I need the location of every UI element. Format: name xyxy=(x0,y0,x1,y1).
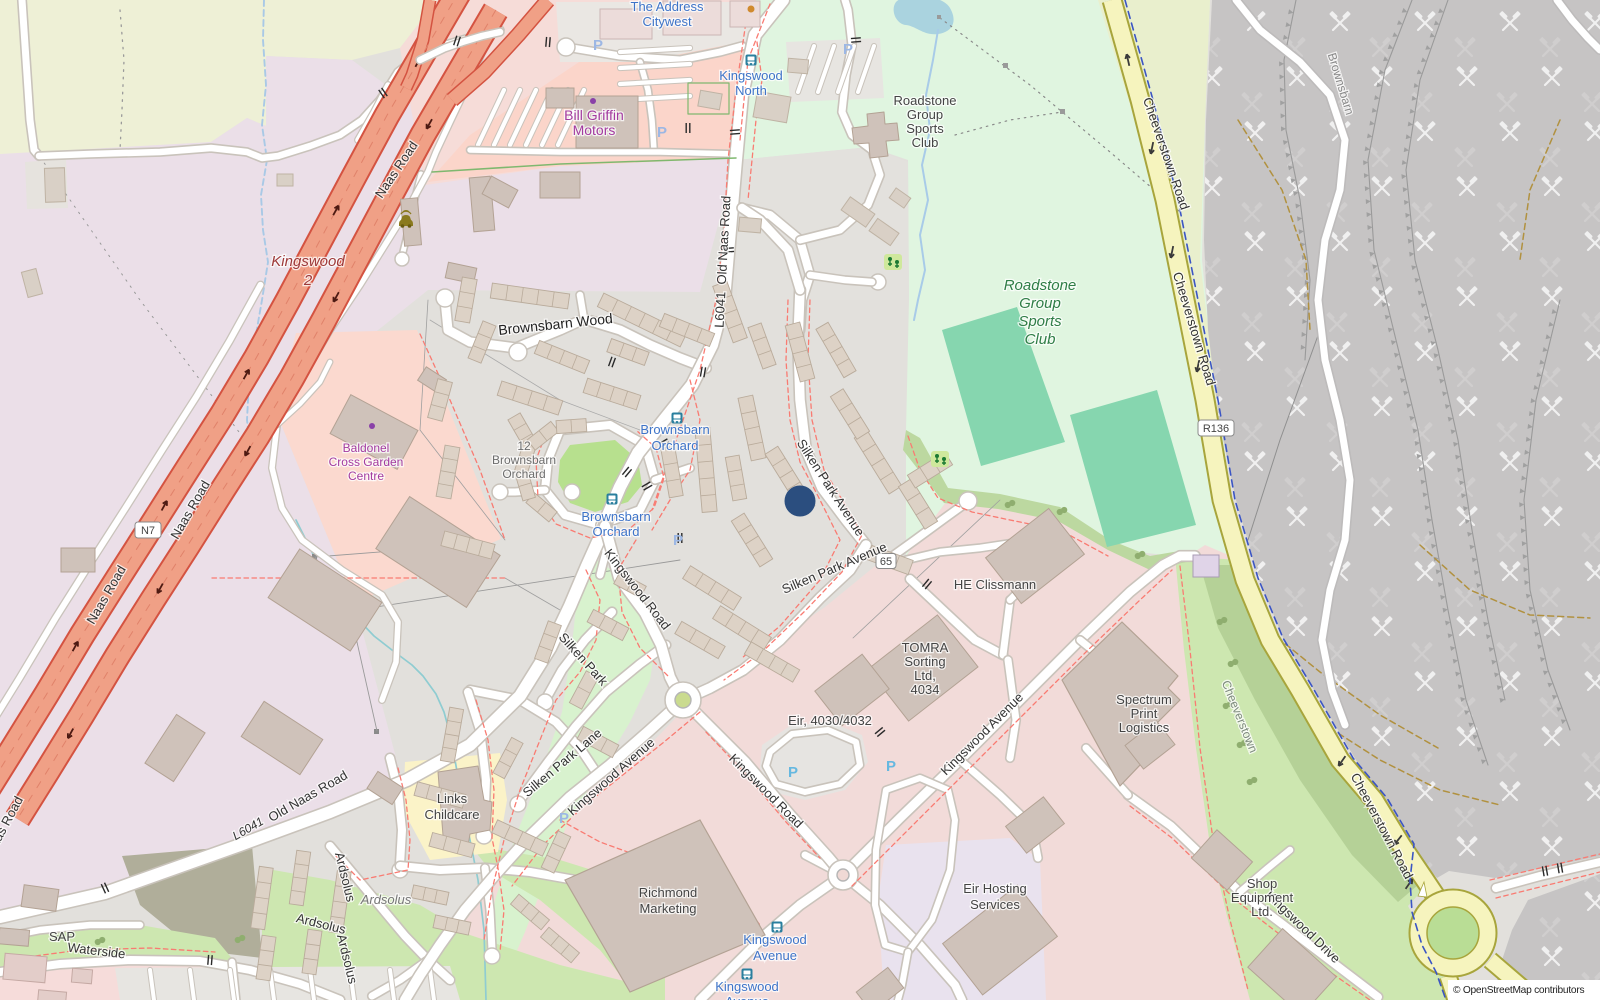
svg-text:Group: Group xyxy=(907,107,943,122)
svg-text:Baldonel: Baldonel xyxy=(343,441,390,455)
svg-text:Ltd,: Ltd, xyxy=(914,668,936,683)
svg-text:Kingswood: Kingswood xyxy=(719,68,783,83)
svg-text:Ltd.: Ltd. xyxy=(1251,904,1273,919)
svg-text:2: 2 xyxy=(303,272,313,289)
svg-text:HE Clissmann: HE Clissmann xyxy=(954,577,1036,592)
svg-text:Richmond: Richmond xyxy=(639,885,698,900)
svg-text:Eir, 4030/4032: Eir, 4030/4032 xyxy=(788,713,872,728)
svg-text:Sports: Sports xyxy=(1018,313,1062,330)
svg-text:Equipment: Equipment xyxy=(1231,890,1294,905)
svg-text:Orchard: Orchard xyxy=(593,524,640,539)
svg-text:Avenue: Avenue xyxy=(725,994,769,1000)
svg-text:Club: Club xyxy=(1025,331,1056,348)
svg-text:Cross Garden: Cross Garden xyxy=(329,455,404,469)
svg-text:Avenue: Avenue xyxy=(753,948,797,963)
svg-text:Logistics: Logistics xyxy=(1119,720,1170,735)
svg-text:The Address: The Address xyxy=(631,0,704,14)
svg-text:Roadstone: Roadstone xyxy=(1004,277,1077,294)
svg-text:65: 65 xyxy=(880,556,892,568)
svg-text:Ardsolus: Ardsolus xyxy=(360,892,412,907)
svg-text:Spectrum: Spectrum xyxy=(1116,692,1172,707)
svg-text:Print: Print xyxy=(1131,706,1158,721)
svg-text:Orchard: Orchard xyxy=(502,467,545,481)
svg-text:Citywest: Citywest xyxy=(642,14,692,29)
svg-text:Sorting: Sorting xyxy=(904,654,945,669)
svg-text:Kingswood: Kingswood xyxy=(715,979,779,994)
svg-text:Brownsbarn: Brownsbarn xyxy=(492,453,556,467)
svg-text:R136: R136 xyxy=(1203,423,1229,435)
svg-text:Links: Links xyxy=(437,791,468,806)
svg-text:TOMRA: TOMRA xyxy=(902,640,949,655)
svg-text:P: P xyxy=(843,41,853,58)
svg-text:P: P xyxy=(593,37,603,54)
svg-text:Brownsbarn: Brownsbarn xyxy=(581,509,650,524)
svg-text:Services: Services xyxy=(970,897,1020,912)
svg-text:Roadstone: Roadstone xyxy=(894,93,957,108)
svg-text:N7: N7 xyxy=(141,525,155,537)
svg-text:Bill Griffin: Bill Griffin xyxy=(564,107,624,123)
svg-text:Brownsbarn: Brownsbarn xyxy=(640,422,709,437)
svg-text:Marketing: Marketing xyxy=(639,901,696,916)
svg-text:P: P xyxy=(559,810,569,827)
svg-text:Childcare: Childcare xyxy=(425,807,480,822)
svg-text:Orchard: Orchard xyxy=(652,438,699,453)
svg-text:Sports: Sports xyxy=(906,121,944,136)
svg-text:P: P xyxy=(788,764,798,781)
svg-text:Motors: Motors xyxy=(573,122,616,138)
svg-text:Club: Club xyxy=(912,135,939,150)
svg-text:Shop: Shop xyxy=(1247,876,1277,891)
svg-text:North: North xyxy=(735,83,767,98)
svg-text:4034: 4034 xyxy=(911,682,940,697)
svg-text:Kingswood: Kingswood xyxy=(743,932,807,947)
svg-text:© OpenStreetMap contributors: © OpenStreetMap contributors xyxy=(1453,985,1584,996)
svg-text:Eir Hosting: Eir Hosting xyxy=(963,881,1027,896)
svg-text:P: P xyxy=(673,532,683,549)
svg-text:Kingswood: Kingswood xyxy=(271,253,345,270)
svg-text:12: 12 xyxy=(517,439,531,453)
svg-text:SAP: SAP xyxy=(49,929,75,944)
svg-text:P: P xyxy=(886,758,896,775)
svg-text:P: P xyxy=(657,124,667,141)
svg-text:Centre: Centre xyxy=(348,469,384,483)
svg-text:Group: Group xyxy=(1019,295,1061,312)
